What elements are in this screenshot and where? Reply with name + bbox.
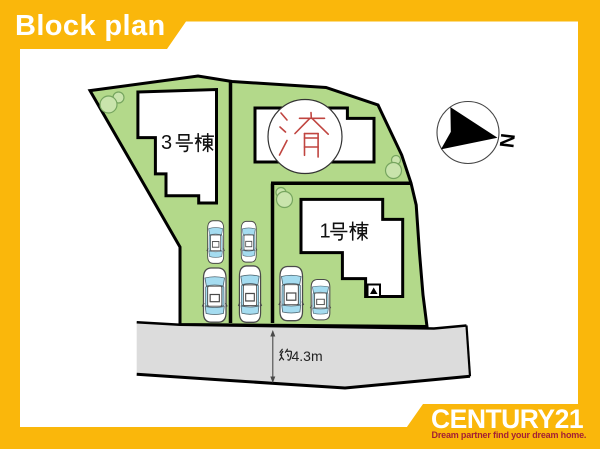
svg-text:4.3m: 4.3m <box>292 348 323 364</box>
svg-text:Dream partner find your dream: Dream partner find your dream home. <box>432 430 587 440</box>
svg-text:3: 3 <box>161 132 172 154</box>
svg-text:Block plan: Block plan <box>15 10 166 42</box>
svg-text:1: 1 <box>320 221 331 243</box>
svg-text:N: N <box>495 132 519 149</box>
